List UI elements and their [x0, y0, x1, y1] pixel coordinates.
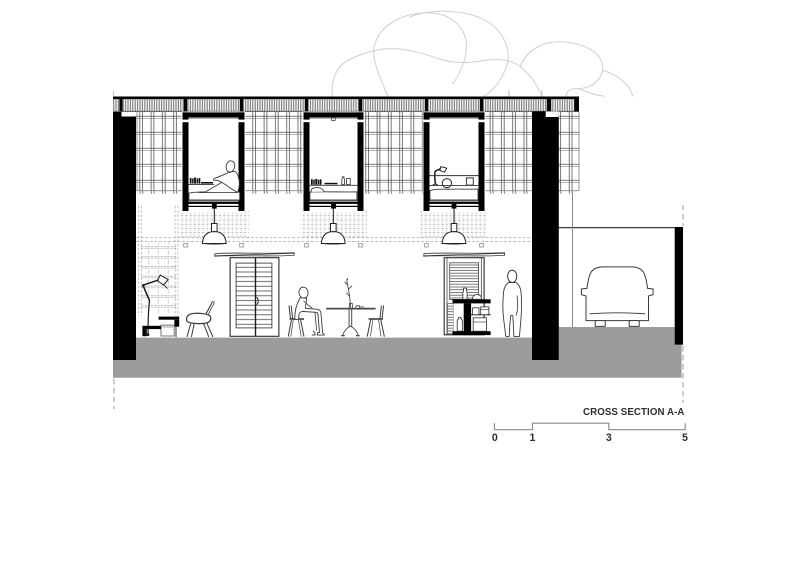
svg-text:5: 5 — [682, 432, 688, 444]
svg-text:0: 0 — [492, 432, 498, 444]
svg-text:CROSS SECTION A-A: CROSS SECTION A-A — [583, 407, 684, 418]
svg-text:3: 3 — [606, 432, 612, 444]
svg-text:1: 1 — [530, 432, 536, 444]
